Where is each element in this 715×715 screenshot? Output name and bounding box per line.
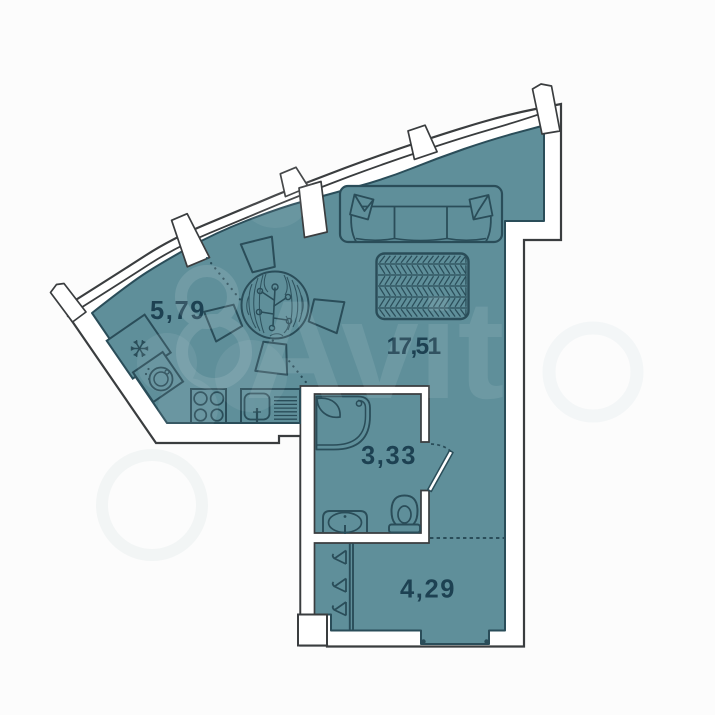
svg-text:17,51: 17,51: [387, 333, 441, 360]
svg-text:3,33: 3,33: [361, 442, 417, 470]
svg-text:5,79: 5,79: [150, 297, 206, 325]
svg-text:4,29: 4,29: [400, 576, 456, 604]
